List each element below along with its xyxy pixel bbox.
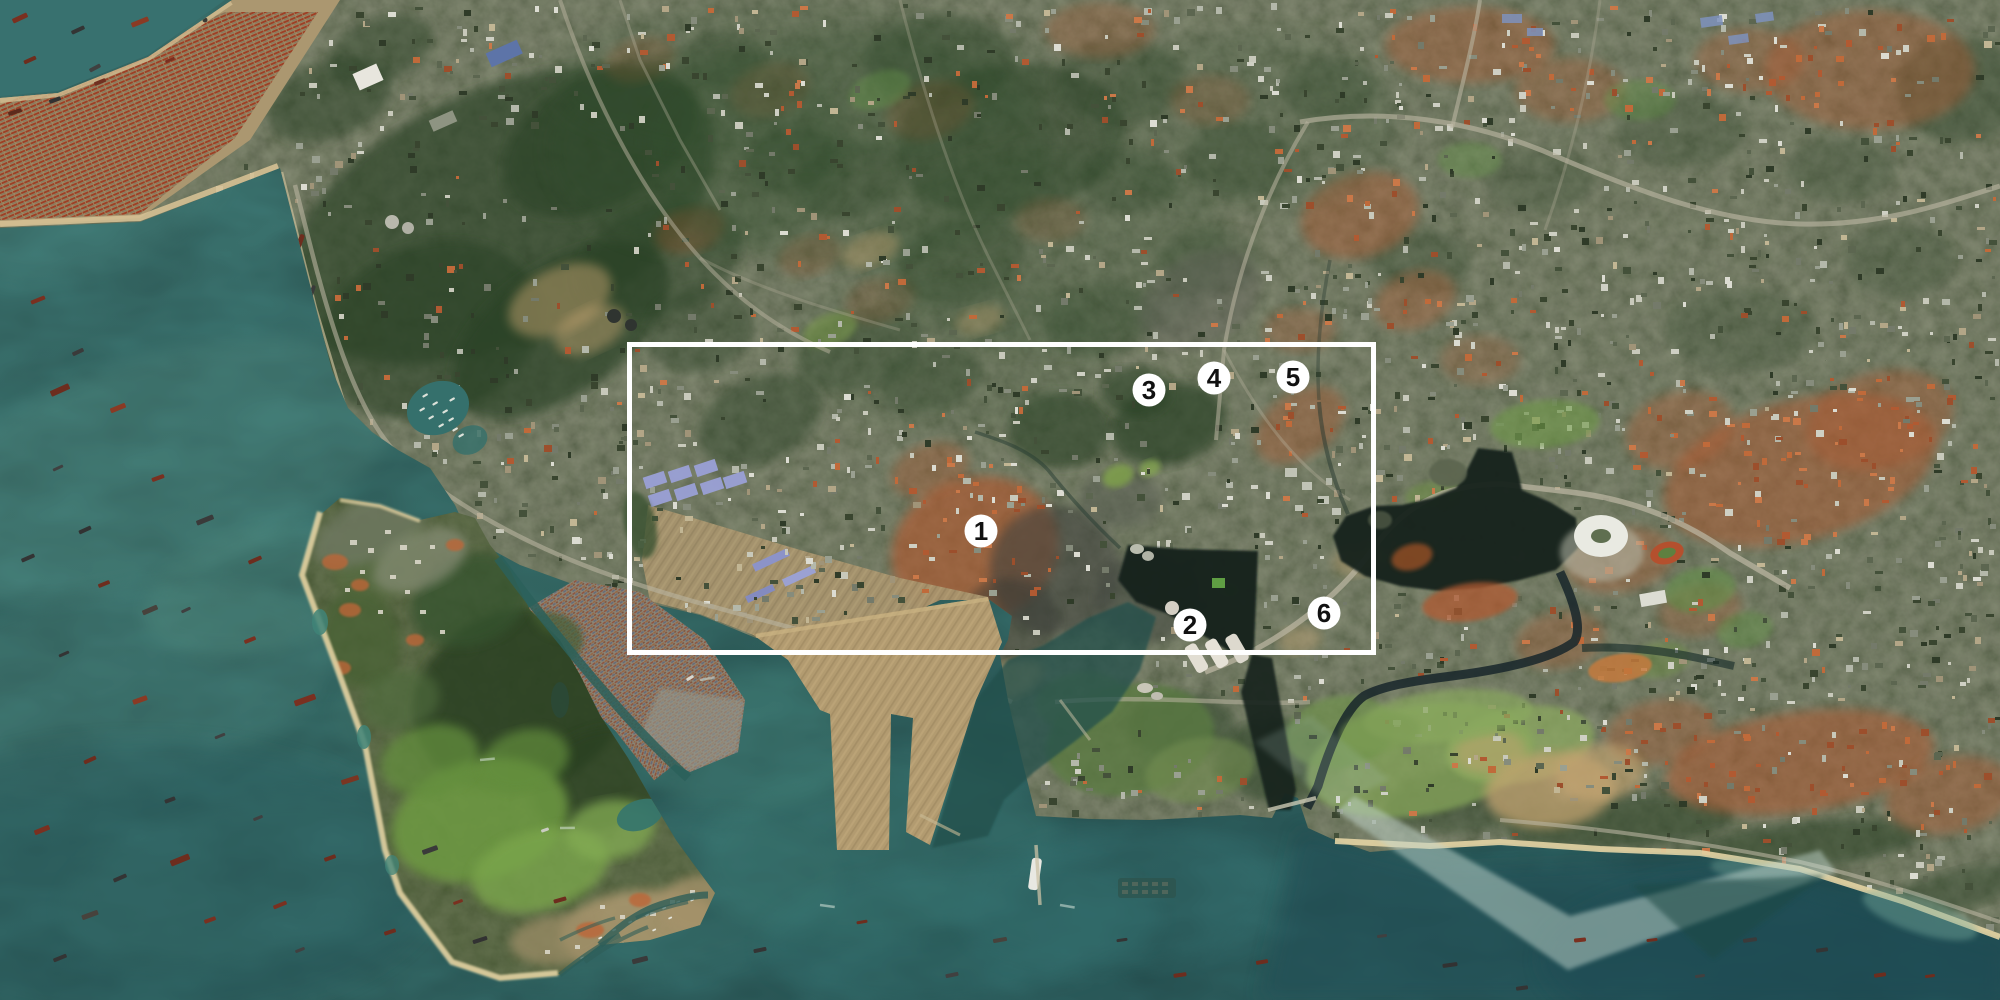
svg-text:4: 4 xyxy=(1207,363,1222,393)
svg-text:5: 5 xyxy=(1286,362,1300,392)
svg-text:2: 2 xyxy=(1183,610,1197,640)
svg-text:1: 1 xyxy=(974,516,988,546)
svg-text:3: 3 xyxy=(1142,375,1156,405)
svg-text:6: 6 xyxy=(1317,598,1331,628)
